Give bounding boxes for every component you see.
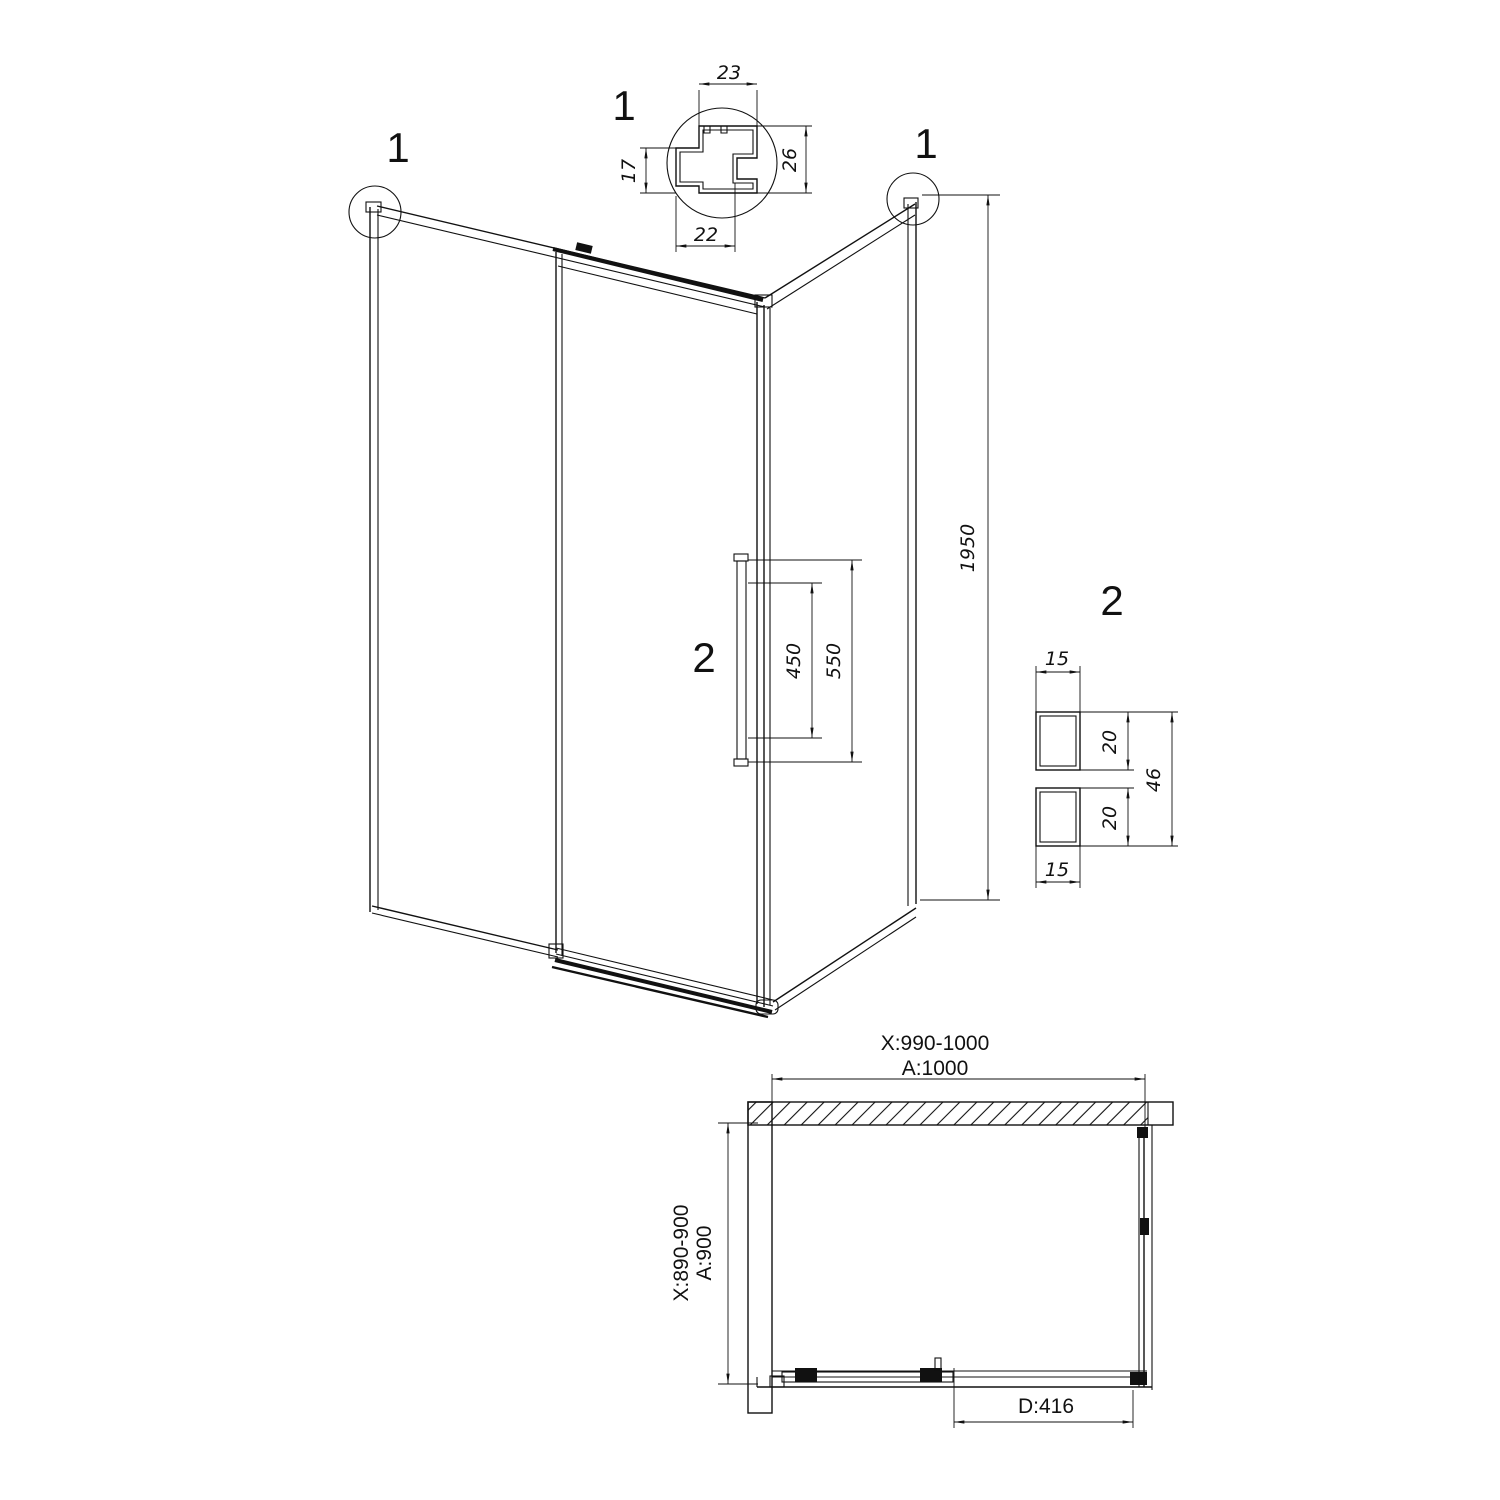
handle-bottom-width-text: 15 — [1045, 859, 1069, 881]
plan-panel-mid-clamp — [1140, 1218, 1149, 1235]
plan-width-range-text: X:990-1000 — [881, 1032, 990, 1055]
plan-depth-range-text: X:890-900 — [670, 1205, 693, 1302]
height-dimension: 1950 — [920, 195, 1000, 900]
front-bottom-rail — [372, 906, 563, 958]
front-mullion — [556, 252, 562, 956]
handle-inner-dimension-text: 450 — [783, 643, 805, 679]
door-bottom-track — [552, 948, 773, 1017]
isometric-view: 1 1 1950 450 550 2 — [349, 120, 1000, 1017]
handle-detail-dimensions: 15 20 20 46 15 — [1036, 648, 1178, 888]
profile-detail-circle — [667, 108, 777, 218]
callout-circle-right — [887, 173, 939, 225]
plan-left-wall — [748, 1102, 772, 1413]
profile-dimensions: 23 22 26 17 — [618, 62, 812, 252]
profile-detail: 1 23 22 26 17 — [612, 62, 812, 252]
callout-label-right: 1 — [914, 120, 937, 167]
side-top-rail — [765, 204, 915, 309]
profile-section — [676, 126, 757, 193]
handle-upper-height-text: 20 — [1099, 730, 1121, 754]
profile-detail-label: 1 — [612, 82, 635, 129]
handle-lower-height-text: 20 — [1099, 806, 1121, 830]
door-top-guide — [553, 242, 763, 300]
profile-top-dimension-text: 23 — [717, 62, 741, 84]
shower-enclosure-dimension-drawing: 1 1 1950 450 550 2 1 — [0, 0, 1500, 1500]
plan-side-panel — [1137, 1125, 1152, 1390]
side-bottom-rail — [756, 908, 916, 1014]
height-dimension-text: 1950 — [957, 524, 979, 572]
plan-width-text: A:1000 — [902, 1057, 969, 1080]
handle-section-squares — [1036, 712, 1080, 846]
handle-callout-label: 2 — [692, 634, 715, 681]
plan-depth-dimension: X:890-900 A:900 — [670, 1123, 758, 1384]
right-wall-profile — [904, 198, 918, 906]
plan-view: X:990-1000 A:1000 X:890-900 A:900 — [670, 1032, 1173, 1428]
handle-dimensions: 450 550 2 — [692, 560, 862, 762]
plan-door-roller-left — [795, 1368, 817, 1382]
corner-post — [755, 295, 772, 1007]
handle-top-width-text: 15 — [1045, 648, 1069, 670]
plan-bottom-track — [757, 1358, 1152, 1387]
profile-right-dimension-text: 26 — [779, 148, 801, 172]
technical-drawing-page: 1 1 1950 450 550 2 1 — [0, 0, 1500, 1500]
handle-outer-dimension-text: 550 — [823, 643, 845, 679]
left-wall-profile — [366, 202, 381, 912]
handle-detail-label: 2 — [1100, 577, 1123, 624]
door-handle — [734, 554, 748, 766]
plan-depth-text: A:900 — [693, 1226, 716, 1281]
handle-detail: 2 15 20 20 46 — [1036, 577, 1178, 888]
profile-bottom-dimension-text: 22 — [694, 224, 718, 246]
plan-door-opening-text: D:416 — [1018, 1395, 1074, 1418]
handle-overall-height-text: 46 — [1143, 768, 1165, 792]
profile-left-dimension-text: 17 — [618, 159, 640, 183]
callout-label-left: 1 — [386, 124, 409, 171]
plan-top-wall — [748, 1102, 1173, 1125]
front-top-rail — [377, 206, 765, 314]
plan-panel-top-bracket — [1137, 1127, 1148, 1138]
